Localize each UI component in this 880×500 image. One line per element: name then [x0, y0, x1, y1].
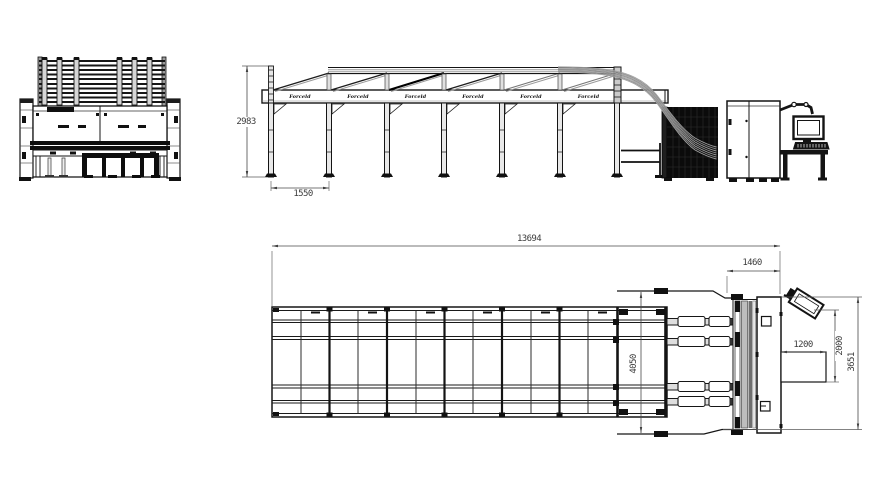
beam-corbels: [274, 104, 575, 114]
brand-plate: Forceld: [396, 93, 436, 101]
machine-body-front: [30, 106, 170, 156]
brand-plate: Forceld: [280, 93, 320, 101]
transfer-rails: [667, 317, 735, 407]
engineering-drawing-page: Forceld Forceld Forceld Forceld Forceld …: [0, 0, 880, 500]
machine-plan: [731, 294, 783, 435]
side-view: [242, 66, 829, 191]
front-view: [19, 57, 181, 181]
keyboard-icon: [794, 143, 830, 150]
conveyor-bed-grid: [272, 307, 667, 417]
brand-plate: Forceld: [338, 93, 378, 101]
brand-plate: Forceld: [511, 93, 551, 101]
dim-outfeed-length: [727, 271, 780, 293]
drawing-canvas: [0, 0, 880, 500]
support-frame: [262, 66, 668, 178]
dim-label-bed-width: 4050: [629, 349, 639, 379]
frame-posts: [265, 103, 623, 177]
dim-label-frame-height: 2983: [231, 117, 261, 127]
dim-label-bay-width: 1550: [288, 189, 318, 199]
dim-label-machine-width: 3651: [847, 347, 857, 377]
brand-plate: Forceld: [453, 93, 493, 101]
console-table-plan: [781, 352, 826, 382]
control-cabinet: [727, 101, 780, 182]
monitor-screen: [798, 121, 820, 136]
monitor-plan: [784, 285, 824, 318]
operator-table: [780, 150, 828, 181]
dim-label-total-length: 13694: [509, 234, 549, 244]
front-logo-plate: [47, 107, 74, 112]
plan-view: [272, 246, 862, 437]
dim-label-console-depth: 2000: [835, 331, 845, 361]
platform-rail: [621, 143, 660, 177]
dim-label-console-width: 1200: [788, 340, 818, 350]
dim-label-outfeed-length: 1460: [737, 258, 767, 268]
control-monitor: [780, 102, 829, 149]
machine-base-front: [33, 153, 167, 178]
dim-total-length: [272, 246, 780, 306]
pallet-stack-icon: [38, 57, 166, 106]
brand-plate: Forceld: [569, 93, 609, 101]
